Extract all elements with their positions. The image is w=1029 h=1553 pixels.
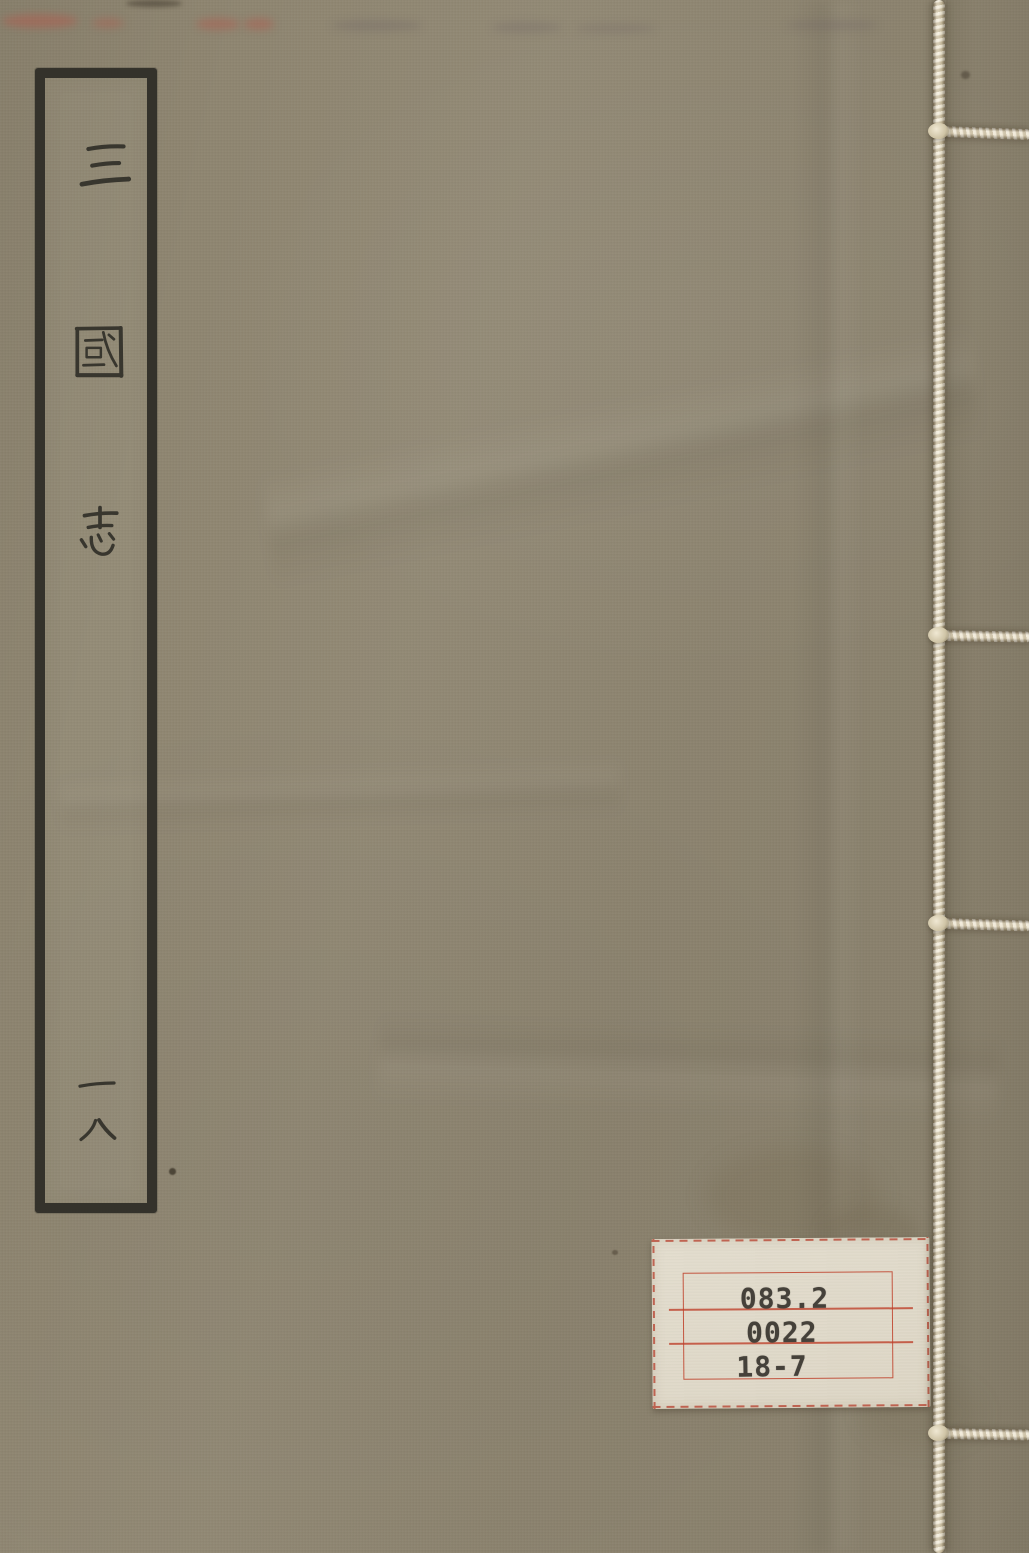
binding-thread-horizontal bbox=[941, 630, 1029, 643]
fabric-crease bbox=[246, 257, 995, 623]
thread-knot bbox=[928, 915, 949, 931]
dark-smudge bbox=[126, 0, 182, 7]
title-label: 三國志 一八 bbox=[35, 68, 157, 1213]
speck bbox=[961, 71, 970, 79]
red-smudge bbox=[196, 18, 240, 30]
red-smudge bbox=[244, 18, 274, 30]
thread-knot bbox=[928, 123, 949, 139]
binding-thread-vertical bbox=[933, 0, 945, 1553]
call-number-label: 083.2 0022 18-7 bbox=[651, 1237, 930, 1409]
book-cover-photo: 三國志 一八 083.2 0022 18-7 bbox=[0, 0, 1029, 1553]
gray-smudge bbox=[492, 22, 562, 33]
fabric-crease bbox=[372, 909, 1007, 1192]
speck bbox=[169, 1168, 176, 1175]
binding-thread-horizontal bbox=[941, 1428, 1029, 1441]
red-smudge bbox=[2, 14, 78, 28]
gray-smudge bbox=[575, 24, 655, 33]
gray-smudge bbox=[786, 20, 878, 30]
call-number-line: 0022 bbox=[746, 1316, 818, 1349]
thread-knot bbox=[928, 627, 949, 643]
call-number-line: 083.2 bbox=[740, 1282, 830, 1316]
speck bbox=[612, 1250, 618, 1255]
volume-characters bbox=[45, 78, 147, 1203]
cover-right-shading bbox=[946, 0, 1029, 1553]
brush-character-glyph bbox=[74, 1060, 120, 1106]
red-smudge bbox=[92, 18, 124, 28]
thread-knot bbox=[928, 1425, 949, 1441]
gray-smudge bbox=[332, 20, 422, 31]
call-number-line: 18-7 bbox=[736, 1350, 808, 1384]
brush-character-glyph bbox=[72, 1108, 122, 1158]
